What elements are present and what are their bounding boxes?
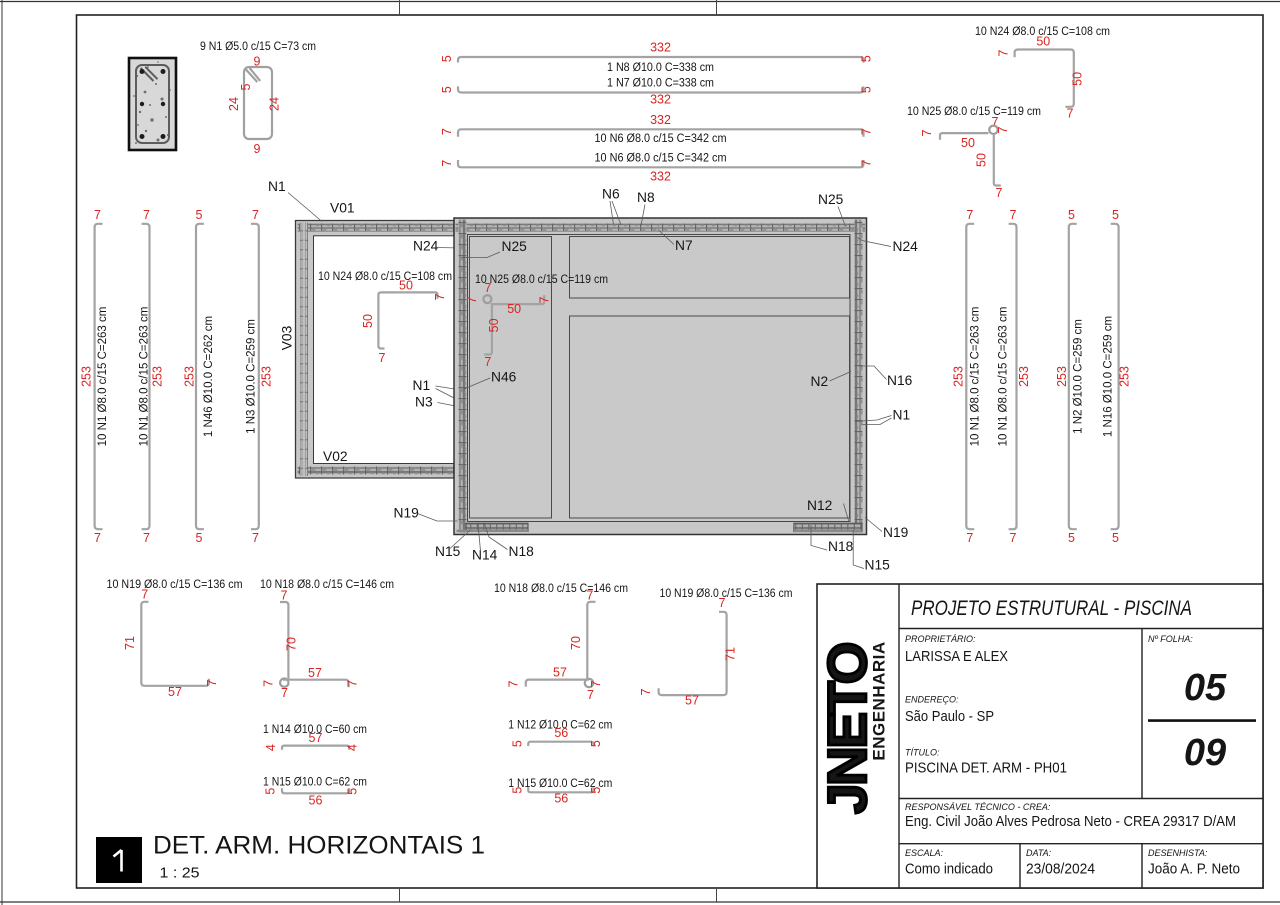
svg-text:7: 7 xyxy=(143,208,150,222)
svg-text:7: 7 xyxy=(996,126,1010,133)
svg-text:N18: N18 xyxy=(509,544,535,559)
svg-text:7: 7 xyxy=(966,208,973,222)
svg-text:05: 05 xyxy=(1184,667,1227,709)
svg-text:DESENHISTA:: DESENHISTA: xyxy=(1148,848,1208,858)
svg-text:5: 5 xyxy=(589,740,603,747)
svg-text:7: 7 xyxy=(379,351,386,365)
svg-text:Nº FOLHA:: Nº FOLHA: xyxy=(1148,634,1193,644)
svg-text:24: 24 xyxy=(268,97,282,111)
svg-text:7: 7 xyxy=(205,679,219,686)
svg-text:1 N2 Ø10.0 C=259 cm: 1 N2 Ø10.0 C=259 cm xyxy=(1073,319,1085,434)
svg-text:TÍTULO:: TÍTULO: xyxy=(905,748,940,758)
svg-text:10 N24 Ø8.0 c/15 C=108 cm: 10 N24 Ø8.0 c/15 C=108 cm xyxy=(318,269,452,283)
svg-text:N6: N6 xyxy=(602,187,620,202)
svg-text:1 N16 Ø10.0 C=259 cm: 1 N16 Ø10.0 C=259 cm xyxy=(1103,316,1115,437)
svg-text:5: 5 xyxy=(346,788,360,795)
svg-text:N3: N3 xyxy=(415,395,433,410)
svg-text:253: 253 xyxy=(80,366,94,387)
svg-text:5: 5 xyxy=(860,55,874,62)
svg-text:5: 5 xyxy=(511,787,525,794)
svg-text:7: 7 xyxy=(1010,531,1017,545)
svg-text:LARISSA E ALEX: LARISSA E ALEX xyxy=(905,648,1008,665)
svg-text:1 : 25: 1 : 25 xyxy=(160,865,200,882)
svg-text:7: 7 xyxy=(920,129,934,136)
svg-text:PROPRIETÁRIO:: PROPRIETÁRIO: xyxy=(905,634,976,644)
svg-text:5: 5 xyxy=(860,86,874,93)
svg-text:7: 7 xyxy=(484,355,491,369)
svg-text:56: 56 xyxy=(554,726,568,740)
svg-text:João A. P. Neto: João A. P. Neto xyxy=(1148,861,1240,878)
svg-text:10 N1 Ø8.0 c/15 C=263 cm: 10 N1 Ø8.0 c/15 C=263 cm xyxy=(970,307,982,447)
svg-text:N25: N25 xyxy=(818,192,844,207)
svg-text:7: 7 xyxy=(94,208,101,222)
svg-text:57: 57 xyxy=(308,666,322,680)
svg-text:5: 5 xyxy=(1068,208,1075,222)
svg-text:50: 50 xyxy=(1070,72,1084,86)
svg-text:5: 5 xyxy=(196,531,203,545)
svg-text:N24: N24 xyxy=(413,239,439,254)
svg-text:1 N8 Ø10.0 C=338 cm: 1 N8 Ø10.0 C=338 cm xyxy=(607,60,714,74)
svg-text:10 N25 Ø8.0 c/15 C=119 cm: 10 N25 Ø8.0 c/15 C=119 cm xyxy=(907,104,1041,118)
svg-text:50: 50 xyxy=(399,279,413,293)
svg-text:N1: N1 xyxy=(413,378,431,393)
svg-text:7: 7 xyxy=(252,531,259,545)
svg-text:DATA:: DATA: xyxy=(1026,848,1052,858)
svg-text:N2: N2 xyxy=(811,374,829,389)
svg-text:9: 9 xyxy=(254,55,261,69)
svg-text:56: 56 xyxy=(309,794,323,808)
svg-text:7: 7 xyxy=(440,128,454,135)
svg-text:7: 7 xyxy=(440,160,454,167)
svg-text:1 N46 Ø10.0 C=262 cm: 1 N46 Ø10.0 C=262 cm xyxy=(203,316,215,437)
svg-text:5: 5 xyxy=(440,86,454,93)
svg-text:7: 7 xyxy=(281,589,288,603)
svg-text:9: 9 xyxy=(254,142,261,156)
svg-text:57: 57 xyxy=(168,685,182,699)
svg-text:ENGENHARIA: ENGENHARIA xyxy=(870,641,889,760)
svg-text:N8: N8 xyxy=(637,190,655,205)
svg-text:10 N19 Ø8.0 c/15 C=136 cm: 10 N19 Ø8.0 c/15 C=136 cm xyxy=(660,586,793,600)
svg-text:7: 7 xyxy=(141,587,148,601)
svg-text:7: 7 xyxy=(484,281,491,295)
svg-text:09: 09 xyxy=(1184,732,1226,774)
svg-text:9 N1 Ø5.0 c/15 C=73 cm: 9 N1 Ø5.0 c/15 C=73 cm xyxy=(200,39,316,53)
svg-text:332: 332 xyxy=(650,170,671,184)
svg-text:4: 4 xyxy=(346,744,360,751)
svg-text:N16: N16 xyxy=(887,373,913,388)
svg-text:4: 4 xyxy=(264,744,278,751)
svg-text:7: 7 xyxy=(639,688,653,695)
svg-text:7: 7 xyxy=(538,296,552,303)
svg-text:N15: N15 xyxy=(865,558,891,573)
svg-text:56: 56 xyxy=(554,791,568,805)
svg-text:N7: N7 xyxy=(675,238,693,253)
svg-text:253: 253 xyxy=(1017,366,1031,387)
svg-text:1 N3 Ø10.0 C=259 cm: 1 N3 Ø10.0 C=259 cm xyxy=(246,319,258,434)
svg-text:N14: N14 xyxy=(472,548,498,563)
svg-text:7: 7 xyxy=(587,688,594,702)
svg-text:24: 24 xyxy=(227,97,241,111)
svg-text:5: 5 xyxy=(1112,531,1119,545)
svg-text:1 N15 Ø10.0 C=62 cm: 1 N15 Ø10.0 C=62 cm xyxy=(263,775,367,789)
svg-text:332: 332 xyxy=(650,93,671,107)
svg-text:50: 50 xyxy=(361,314,375,328)
svg-text:N1: N1 xyxy=(893,408,911,423)
svg-text:7: 7 xyxy=(262,680,276,687)
svg-text:7: 7 xyxy=(966,531,973,545)
svg-text:7: 7 xyxy=(252,208,259,222)
svg-text:V03: V03 xyxy=(280,325,295,350)
svg-text:5: 5 xyxy=(511,740,525,747)
svg-text:Eng. Civil João Alves Pedrosa: Eng. Civil João Alves Pedrosa Neto - CRE… xyxy=(905,813,1236,830)
svg-text:V01: V01 xyxy=(330,201,355,216)
svg-text:Como indicado: Como indicado xyxy=(905,861,993,878)
svg-text:N1: N1 xyxy=(268,179,286,194)
svg-text:5: 5 xyxy=(196,208,203,222)
svg-text:10 N25 Ø8.0 c/15 C=119 cm: 10 N25 Ø8.0 c/15 C=119 cm xyxy=(475,272,608,286)
svg-text:PISCINA DET. ARM - PH01: PISCINA DET. ARM - PH01 xyxy=(905,760,1067,777)
svg-text:5: 5 xyxy=(264,788,278,795)
svg-text:5: 5 xyxy=(440,55,454,62)
svg-text:332: 332 xyxy=(650,113,671,127)
svg-text:70: 70 xyxy=(569,636,583,650)
svg-text:7: 7 xyxy=(433,293,447,300)
svg-text:253: 253 xyxy=(1055,366,1069,387)
svg-text:N15: N15 xyxy=(435,544,461,559)
svg-text:7: 7 xyxy=(281,686,288,700)
svg-text:50: 50 xyxy=(961,136,975,150)
svg-text:5: 5 xyxy=(589,787,603,794)
svg-text:253: 253 xyxy=(183,366,197,387)
svg-text:7: 7 xyxy=(719,596,726,610)
svg-text:10 N19 Ø8.0 c/15 C=136 cm: 10 N19 Ø8.0 c/15 C=136 cm xyxy=(107,577,243,591)
svg-text:RESPONSÁVEL TÉCNICO - CREA:: RESPONSÁVEL TÉCNICO - CREA: xyxy=(905,802,1051,812)
svg-text:50: 50 xyxy=(975,153,989,167)
svg-text:71: 71 xyxy=(123,636,137,650)
svg-text:5: 5 xyxy=(1112,208,1119,222)
svg-text:10 N6 Ø8.0 c/15 C=342 cm: 10 N6 Ø8.0 c/15 C=342 cm xyxy=(595,151,727,165)
svg-text:70: 70 xyxy=(285,637,299,651)
svg-text:N12: N12 xyxy=(807,498,832,513)
svg-text:10 N18 Ø8.0 c/15 C=146 cm: 10 N18 Ø8.0 c/15 C=146 cm xyxy=(494,581,628,595)
svg-text:50: 50 xyxy=(507,302,521,316)
svg-text:23/08/2024: 23/08/2024 xyxy=(1026,861,1095,878)
svg-text:253: 253 xyxy=(952,366,966,387)
svg-text:PROJETO ESTRUTURAL - PISCINA: PROJETO ESTRUTURAL - PISCINA xyxy=(911,597,1192,620)
svg-text:57: 57 xyxy=(309,731,323,745)
svg-text:N24: N24 xyxy=(893,239,919,254)
svg-text:10 N6 Ø8.0 c/15 C=342 cm: 10 N6 Ø8.0 c/15 C=342 cm xyxy=(595,131,727,145)
svg-text:ESCALA:: ESCALA: xyxy=(905,848,944,858)
svg-text:253: 253 xyxy=(151,366,165,387)
svg-text:7: 7 xyxy=(507,680,521,687)
svg-text:7: 7 xyxy=(1010,208,1017,222)
svg-text:71: 71 xyxy=(724,647,738,661)
svg-text:7: 7 xyxy=(589,680,603,687)
svg-text:7: 7 xyxy=(143,531,150,545)
svg-text:5: 5 xyxy=(239,83,253,90)
svg-text:57: 57 xyxy=(553,666,567,680)
svg-text:DET. ARM. HORIZONTAIS 1: DET. ARM. HORIZONTAIS 1 xyxy=(153,832,485,860)
svg-text:7: 7 xyxy=(345,680,359,687)
svg-text:N46: N46 xyxy=(491,370,517,385)
svg-text:50: 50 xyxy=(1036,35,1050,49)
svg-text:5: 5 xyxy=(1068,531,1075,545)
svg-text:N25: N25 xyxy=(502,239,528,254)
svg-text:V02: V02 xyxy=(323,449,348,464)
svg-text:10 N1 Ø8.0 c/15 C=263 cm: 10 N1 Ø8.0 c/15 C=263 cm xyxy=(97,307,109,447)
svg-text:7: 7 xyxy=(1067,106,1074,120)
svg-text:7: 7 xyxy=(860,160,874,167)
svg-text:332: 332 xyxy=(650,41,671,55)
svg-text:N18: N18 xyxy=(828,539,854,554)
svg-text:7: 7 xyxy=(586,589,593,603)
svg-text:N19: N19 xyxy=(394,506,420,521)
svg-text:São Paulo - SP: São Paulo - SP xyxy=(905,708,994,725)
svg-text:7: 7 xyxy=(465,296,479,303)
svg-text:10 N1 Ø8.0 c/15 C=263 cm: 10 N1 Ø8.0 c/15 C=263 cm xyxy=(998,307,1010,447)
svg-text:50: 50 xyxy=(487,318,501,332)
svg-text:1 N7 Ø10.0 C=338 cm: 1 N7 Ø10.0 C=338 cm xyxy=(607,76,714,90)
svg-text:N19: N19 xyxy=(883,525,909,540)
svg-text:253: 253 xyxy=(260,366,274,387)
svg-text:7: 7 xyxy=(997,50,1011,57)
svg-text:ENDEREÇO:: ENDEREÇO: xyxy=(905,695,959,705)
svg-text:7: 7 xyxy=(94,531,101,545)
svg-text:7: 7 xyxy=(996,186,1003,200)
svg-text:57: 57 xyxy=(685,694,699,708)
svg-text:7: 7 xyxy=(860,128,874,135)
svg-text:253: 253 xyxy=(1118,366,1132,387)
svg-text:10 N1 Ø8.0 c/15 C=263 cm: 10 N1 Ø8.0 c/15 C=263 cm xyxy=(138,307,150,447)
